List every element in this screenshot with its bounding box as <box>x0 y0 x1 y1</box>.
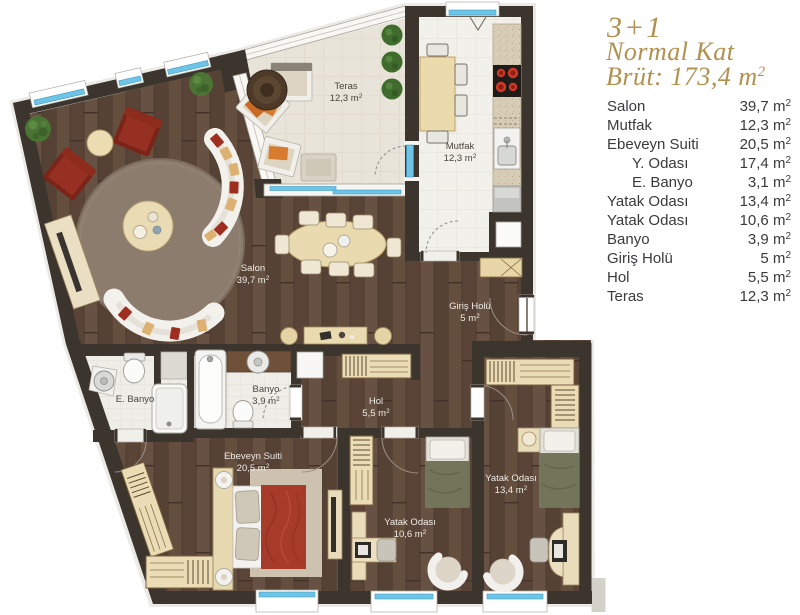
svg-text:Mutfak: Mutfak <box>607 117 653 134</box>
svg-text:Salon: Salon <box>607 98 645 115</box>
svg-text:20,5 m2: 20,5 m2 <box>740 136 792 153</box>
svg-text:5,5 m2: 5,5 m2 <box>362 408 390 419</box>
svg-text:10,6 m2: 10,6 m2 <box>740 212 792 229</box>
svg-text:5,5 m2: 5,5 m2 <box>748 269 792 286</box>
svg-text:12,3 m2: 12,3 m2 <box>740 117 792 134</box>
svg-text:12,3 m2: 12,3 m2 <box>330 93 363 104</box>
svg-text:39,7 m2: 39,7 m2 <box>740 98 792 115</box>
svg-text:Yatak Odası: Yatak Odası <box>607 212 688 229</box>
svg-text:17,4 m2: 17,4 m2 <box>740 155 792 172</box>
svg-text:39,7 m2: 39,7 m2 <box>237 275 270 286</box>
svg-text:3,1 m2: 3,1 m2 <box>748 174 792 191</box>
svg-text:Yatak Odası: Yatak Odası <box>485 473 537 484</box>
svg-text:Teras: Teras <box>607 288 644 305</box>
svg-text:3,9 m2: 3,9 m2 <box>748 231 792 248</box>
svg-text:13,4 m2: 13,4 m2 <box>740 193 792 210</box>
svg-text:Ebeveyn Suiti: Ebeveyn Suiti <box>607 136 699 153</box>
svg-text:Ebeveyn Suiti: Ebeveyn Suiti <box>224 451 282 462</box>
svg-text:Giriş Holü: Giriş Holü <box>449 301 491 312</box>
svg-text:Y. Odası: Y. Odası <box>632 155 688 172</box>
svg-text:E. Banyo: E. Banyo <box>116 394 155 405</box>
svg-text:Hol: Hol <box>369 396 383 407</box>
svg-text:Mutfak: Mutfak <box>446 141 475 152</box>
svg-text:Yatak Odası: Yatak Odası <box>607 193 688 210</box>
svg-text:Brüt: 173,4 m2: Brüt: 173,4 m2 <box>606 62 766 91</box>
svg-text:Banyo: Banyo <box>253 384 280 395</box>
svg-text:Banyo: Banyo <box>607 231 650 248</box>
svg-text:13,4 m2: 13,4 m2 <box>495 485 528 496</box>
svg-text:Hol: Hol <box>607 269 630 286</box>
svg-text:Salon: Salon <box>241 263 265 274</box>
svg-text:10,6 m2: 10,6 m2 <box>394 529 427 540</box>
svg-text:12,3 m2: 12,3 m2 <box>444 153 477 164</box>
svg-text:12,3 m2: 12,3 m2 <box>740 288 792 305</box>
svg-text:Giriş Holü: Giriş Holü <box>607 250 673 267</box>
svg-text:Teras: Teras <box>334 81 357 92</box>
svg-text:Yatak Odası: Yatak Odası <box>384 517 436 528</box>
svg-text:20,5 m2: 20,5 m2 <box>237 463 270 474</box>
svg-text:E. Banyo: E. Banyo <box>632 174 693 191</box>
svg-text:3,9 m2: 3,9 m2 <box>252 396 280 407</box>
